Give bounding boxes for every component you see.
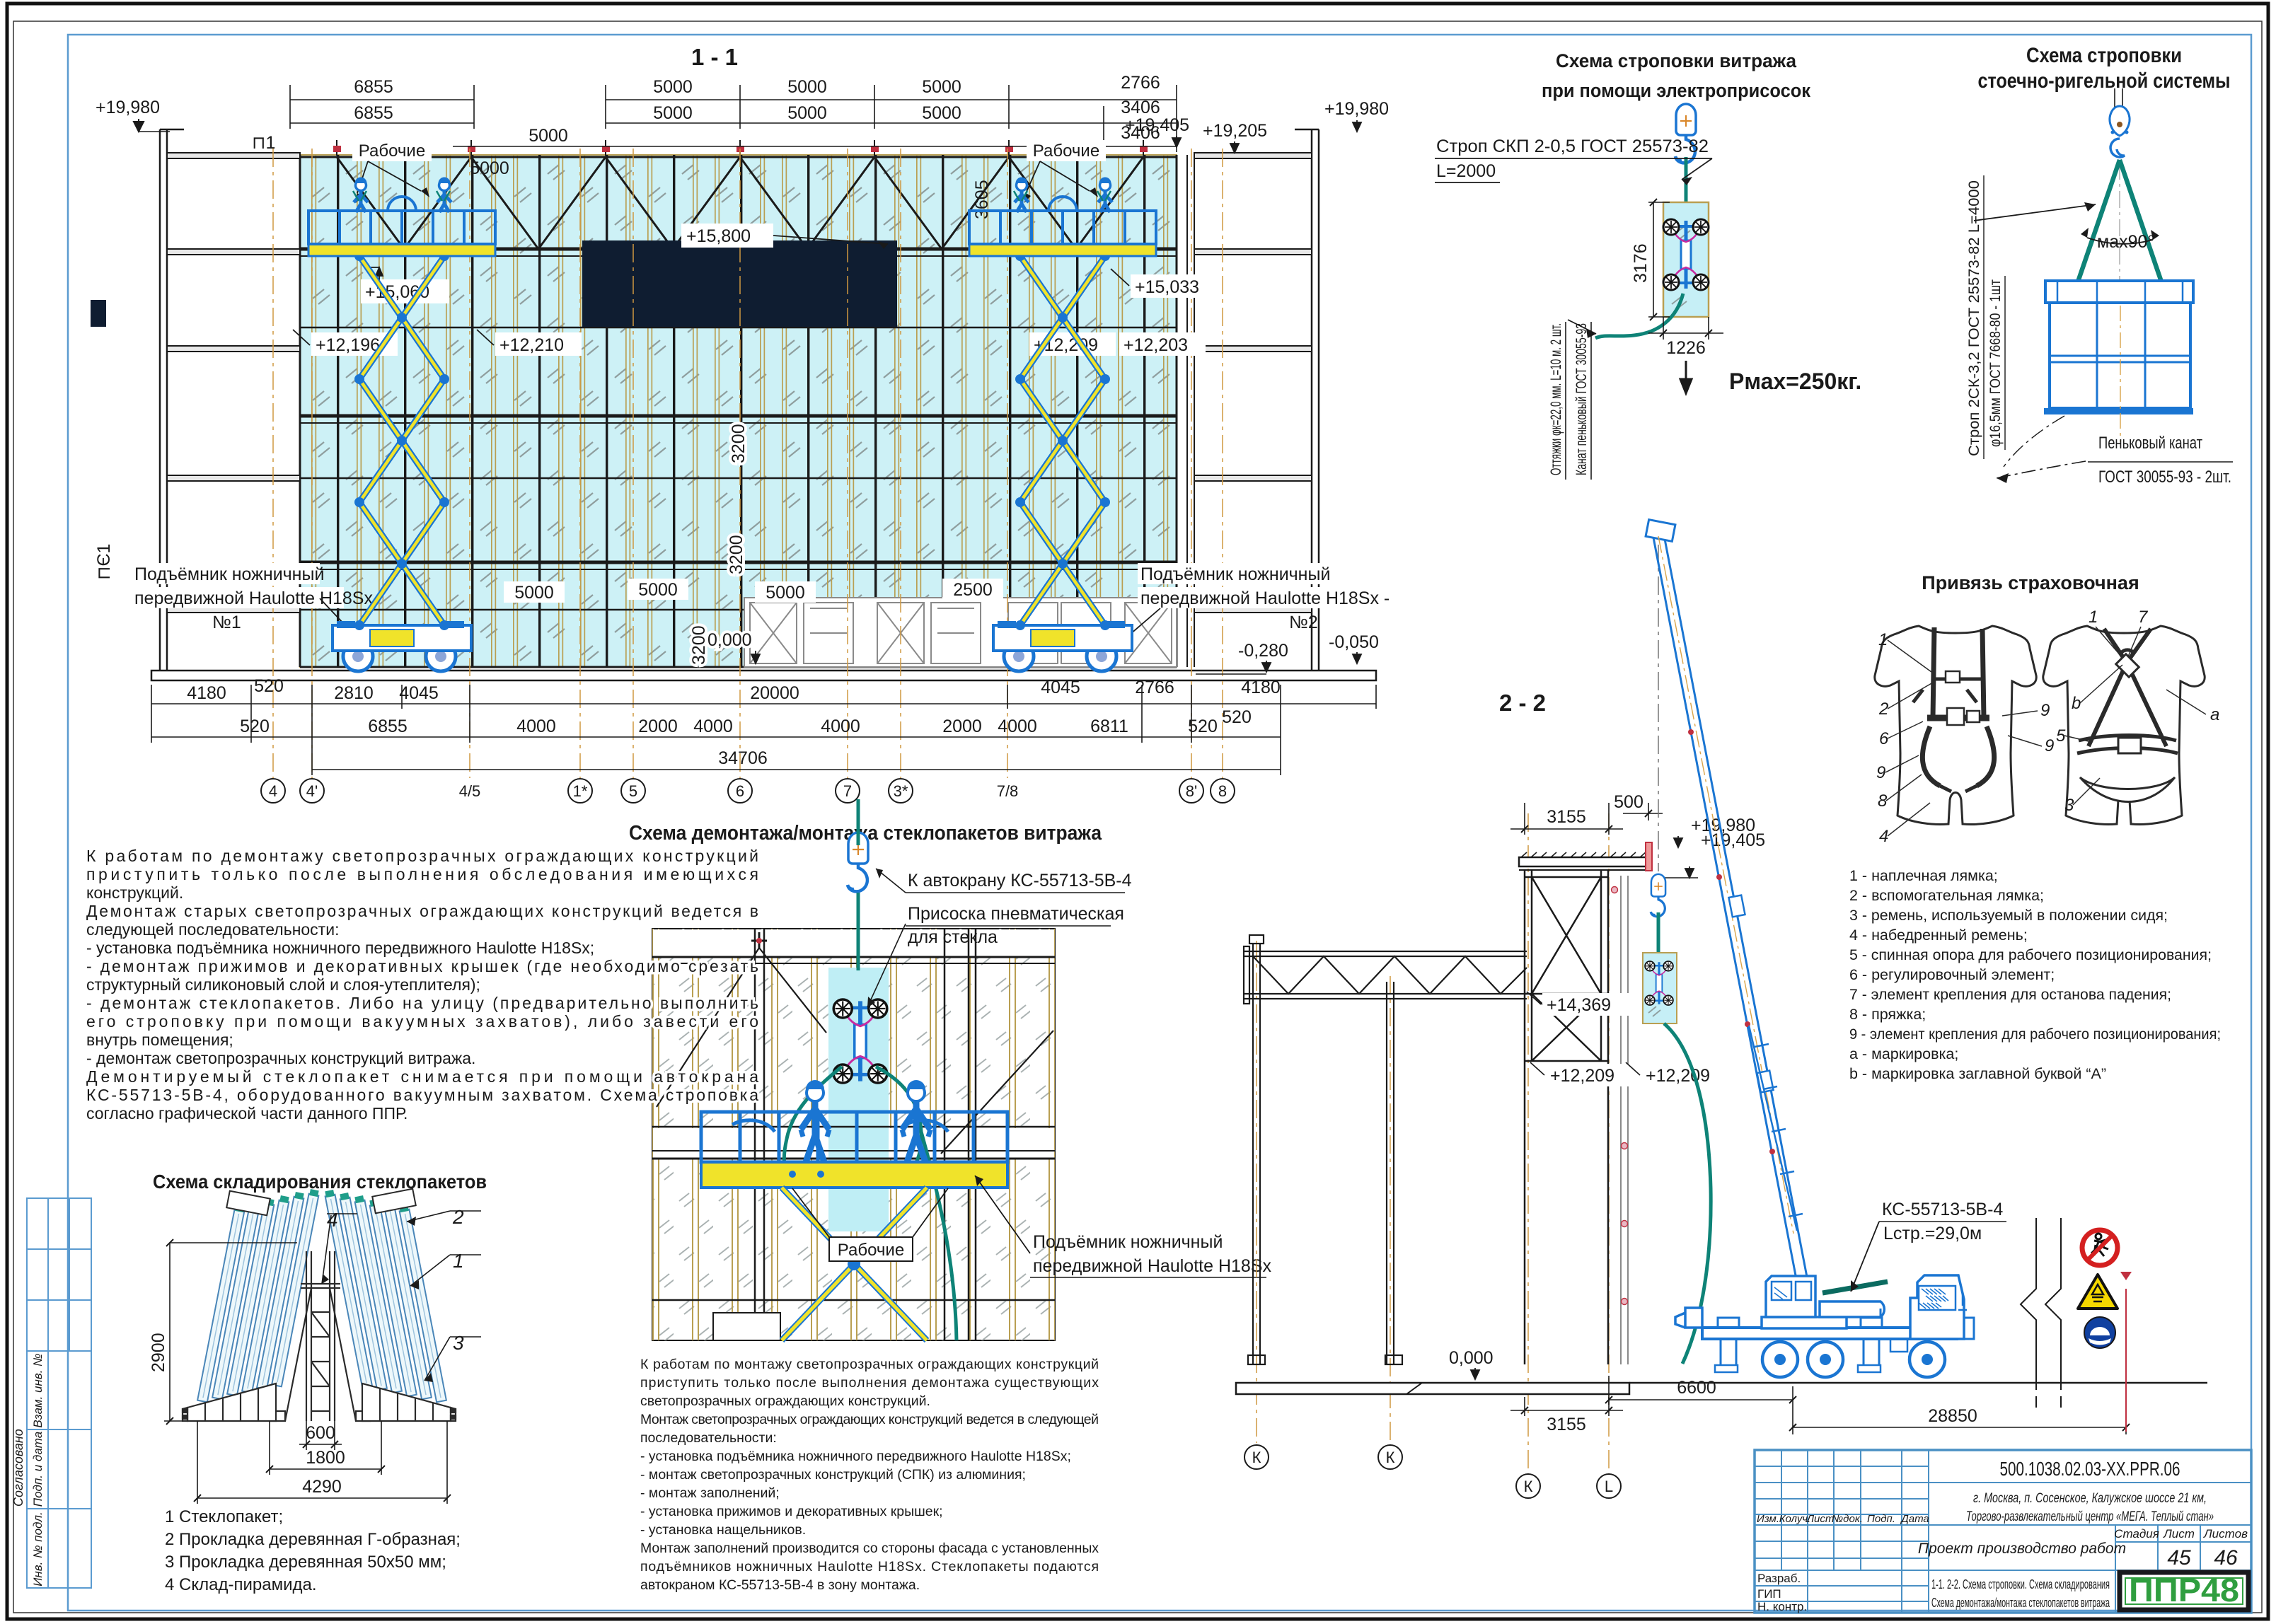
svg-text:a: a [2210,705,2219,724]
svg-text:6: 6 [1879,729,1889,748]
svg-text:600: 600 [306,1423,335,1443]
svg-text:Согласовано: Согласовано [11,1429,25,1507]
svg-text:согласно графической части дан: согласно графической части данного ППР. [86,1104,408,1123]
svg-text:5 - спинная опора для рабочего: 5 - спинная опора для рабочего позициони… [1849,946,2212,963]
svg-text:5000: 5000 [653,77,693,97]
svg-text:Изм.: Изм. [1757,1513,1779,1525]
svg-text:1: 1 [1878,630,1888,649]
svg-text:8: 8 [1218,782,1227,800]
svg-text:5000: 5000 [528,126,568,146]
svg-text:⊓Є1: ⊓Є1 [94,544,114,580]
svg-text:Подъёмник ножничный: Подъёмник ножничный [134,564,324,584]
svg-text:ППР48: ППР48 [2129,1572,2239,1608]
svg-text:1: 1 [2089,608,2098,627]
svg-text:Подъёмник ножничный: Подъёмник ножничный [1140,564,1330,584]
svg-text:500.1038.02.03-XX.PPR.06: 500.1038.02.03-XX.PPR.06 [2000,1458,2180,1480]
svg-text:Рмах=250кг.: Рмах=250кг. [1729,369,1861,394]
svg-text:приступить только после выполн: приступить только после выполнения обсле… [86,865,758,883]
svg-text:4045: 4045 [1041,678,1080,697]
svg-text:520: 520 [1222,707,1252,727]
svg-text:2766: 2766 [1135,678,1174,697]
svg-text:5000: 5000 [922,103,961,123]
svg-text:5000: 5000 [787,77,827,97]
svg-text:1-1. 2-2. Схема строповки. Схе: 1-1. 2-2. Схема строповки. Схема складир… [1931,1577,2110,1591]
svg-text:L: L [1605,1478,1613,1495]
svg-text:4: 4 [1879,827,1888,846]
svg-text:- установка подъёмника ножничн: - установка подъёмника ножничного передв… [640,1449,1071,1464]
svg-text:Пеньковый канат: Пеньковый канат [2098,434,2202,453]
svg-text:L=2000: L=2000 [1436,161,1496,181]
svg-text:Листов: Листов [2203,1527,2248,1541]
svg-text:Канат пеньковый ГОСТ 30055-93: Канат пеньковый ГОСТ 30055-93 [1573,323,1590,475]
svg-text:2 - вспомогательная лямка;: 2 - вспомогательная лямка; [1849,887,2044,904]
svg-text:- установка подъёмника ножничн: - установка подъёмника ножничного передв… [86,939,594,957]
svg-text:его строповку при помощи вакуу: его строповку при помощи вакуумных захва… [86,1012,758,1031]
svg-text:- установка прижимов и декорат: - установка прижимов и декоративных крыш… [640,1504,943,1519]
svg-text:ГОСТ 30055-93 - 2шт.: ГОСТ 30055-93 - 2шт. [2098,468,2231,487]
svg-text:Взам. инв. №: Взам. инв. № [31,1353,45,1427]
svg-text:2 - 2: 2 - 2 [1499,690,1546,716]
svg-text:a - маркировка;: a - маркировка; [1849,1045,1958,1062]
svg-text:34706: 34706 [718,748,768,768]
svg-text:Проект производство работ: Проект производство работ [1918,1541,2126,1557]
svg-text:7 - элемент крепления для оста: 7 - элемент крепления для останова паден… [1849,986,2171,1003]
svg-text:Лист: Лист [1806,1513,1835,1525]
svg-text:6 - регулировочный элемент;: 6 - регулировочный элемент; [1849,966,2055,983]
svg-text:b: b [2072,694,2081,713]
svg-text:6855: 6855 [354,77,393,97]
svg-text:9: 9 [2040,701,2050,720]
svg-text:Разраб.: Разраб. [1757,1572,1801,1585]
svg-text:5000: 5000 [653,103,693,123]
svg-text:Дата: Дата [1900,1513,1929,1525]
svg-text:г. Москва, п. Сосенское, Калуж: г. Москва, п. Сосенское, Калужское шоссе… [1973,1491,2207,1506]
svg-text:Подъёмник ножничный: Подъёмник ножничный [1033,1232,1223,1252]
svg-text:4180: 4180 [187,683,226,703]
svg-text:подъёмников ножничных Haulotte: подъёмников ножничных Haulotte H18Sx. Ст… [640,1559,1099,1574]
svg-text:+19,980: +19,980 [1324,99,1389,119]
svg-text:5000: 5000 [766,583,805,603]
svg-text:К работам по монтажу светопроз: К работам по монтажу светопрозрачных огр… [640,1357,1099,1372]
svg-text:5000: 5000 [787,103,827,123]
svg-text:1800: 1800 [306,1448,345,1468]
svg-text:3200: 3200 [729,424,749,463]
svg-text:5000: 5000 [638,580,678,600]
svg-text:3200: 3200 [727,535,746,574]
svg-text:8 - пряжка;: 8 - пряжка; [1849,1006,1926,1023]
svg-text:4 Склад-пирамида.: 4 Склад-пирамида. [165,1575,317,1594]
svg-text:3176: 3176 [1631,243,1651,283]
svg-text:передвижной Haulotte H18Sx: передвижной Haulotte H18Sx [1033,1256,1271,1276]
svg-text:стоечно-ригельной системы: стоечно-ригельной системы [1978,69,2231,93]
svg-text:КС-55713-5В-4: КС-55713-5В-4 [1882,1200,2003,1219]
svg-text:+12,209: +12,209 [1550,1066,1614,1086]
svg-text:2000: 2000 [638,717,678,736]
svg-text:8': 8' [1186,782,1197,800]
svg-text:0,000: 0,000 [1449,1348,1494,1368]
svg-text:Подп.: Подп. [1867,1513,1895,1525]
svg-text:1: 1 [453,1250,464,1272]
svg-text:К: К [1524,1478,1533,1495]
svg-text:№2: №2 [1289,613,1318,632]
svg-text:2500: 2500 [953,580,993,600]
svg-text:520: 520 [254,676,284,696]
svg-text:- монтаж светопрозрачных конст: - монтаж светопрозрачных конструкций (СП… [640,1467,1026,1483]
svg-text:1226: 1226 [1666,338,1706,358]
svg-text:3 Прокладка деревянная 50x50: 3 Прокладка деревянная 50x50 мм; [165,1553,446,1572]
svg-text:Присоска пневматическая: Присоска пневматическая [908,904,1124,924]
svg-text:К работам по демонтажу светопр: К работам по демонтажу светопрозрачных о… [86,847,758,865]
svg-text:45: 45 [2167,1546,2191,1570]
svg-text:+12,196: +12,196 [316,335,380,355]
svg-text:0,000: 0,000 [707,630,752,650]
svg-text:+15,800: +15,800 [686,226,751,246]
svg-text:для стекла: для стекла [908,927,998,947]
svg-text:- монтаж заполнений;: - монтаж заполнений; [640,1485,780,1501]
svg-text:+15,033: +15,033 [1135,277,1199,297]
svg-text:2766: 2766 [1121,73,1160,93]
svg-text:последовательности:: последовательности: [640,1430,777,1446]
svg-text:7: 7 [843,782,852,800]
svg-text:+12,203: +12,203 [1123,335,1188,355]
svg-text:передвижной Haulotte H18Sx: передвижной Haulotte H18Sx [134,588,373,608]
svg-text:Монтаж светопрозрачных огражда: Монтаж светопрозрачных ограждающих конст… [640,1412,1099,1427]
svg-text:28850: 28850 [1928,1406,1977,1426]
svg-text:520: 520 [240,717,270,736]
svg-text:светопрозрачных ограждающих ко: светопрозрачных ограждающих конструкций. [640,1393,930,1409]
svg-text:3605: 3605 [972,180,992,219]
svg-text:5: 5 [629,782,637,800]
svg-text:№1: №1 [212,613,241,632]
svg-text:структурный силиконовый слой и: структурный силиконовый слой и слоя-утеп… [86,975,480,994]
svg-text:4/5: 4/5 [459,782,481,800]
svg-text:b - маркировка заглавной букво: b - маркировка заглавной буквой “А” [1849,1065,2106,1082]
svg-text:3 - ремень, используемый в пол: 3 - ремень, используемый в положении сид… [1849,907,2168,924]
svg-text:3: 3 [453,1332,464,1354]
svg-text:4: 4 [269,782,277,800]
svg-text:внутрь помещения;: внутрь помещения; [86,1031,233,1049]
svg-text:Схема складирования стеклопаке: Схема складирования стеклопакетов [153,1171,487,1193]
svg-text:- демонтаж стеклопакетов. Либо: - демонтаж стеклопакетов. Либо на улицу … [86,994,758,1012]
svg-text:Рабочие: Рабочие [838,1241,904,1260]
svg-text:К: К [1252,1449,1261,1466]
svg-text:6: 6 [736,782,744,800]
svg-text:1 - наплечная лямка;: 1 - наплечная лямка; [1849,867,1998,884]
svg-text:+12,210: +12,210 [499,335,564,355]
svg-text:6600: 6600 [1677,1378,1716,1398]
svg-text:500: 500 [1614,792,1644,812]
svg-text:4000: 4000 [998,717,1037,736]
svg-text:φ16,5мм ГОСТ 7668-80 - 1шт: φ16,5мм ГОСТ 7668-80 - 1шт [1987,279,2004,447]
svg-text:9: 9 [2045,736,2054,755]
svg-text:К автокрану КС-55713-5В-4: К автокрану КС-55713-5В-4 [908,871,1132,891]
svg-text:6855: 6855 [354,103,393,123]
svg-text:1 - 1: 1 - 1 [691,44,738,70]
svg-text:Lстр.=29,0м: Lстр.=29,0м [1883,1224,1982,1243]
svg-text:4045: 4045 [399,683,439,703]
svg-text:8: 8 [1878,791,1888,811]
svg-text:+12,209: +12,209 [1646,1066,1710,1086]
svg-text:3155: 3155 [1547,807,1586,827]
svg-text:следующей последовательности:: следующей последовательности: [86,920,339,939]
svg-text:мах90°: мах90° [2097,232,2154,252]
svg-text:-0,280: -0,280 [1238,641,1288,661]
svg-text:4000: 4000 [821,717,860,736]
svg-text:4: 4 [327,1209,338,1231]
svg-text:Строп СКП 2-0,5 ГОСТ 25573-82: Строп СКП 2-0,5 ГОСТ 25573-82 [1436,137,1709,156]
svg-text:520: 520 [1188,717,1218,736]
svg-text:2900: 2900 [149,1333,168,1372]
svg-text:автокраном КС-55713-5В-4 в зон: автокраном КС-55713-5В-4 в зону монтажа. [640,1577,920,1593]
svg-text:4290: 4290 [302,1477,342,1497]
svg-text:Инв. № подл.: Инв. № подл. [31,1512,45,1587]
svg-text:Торгово-развлекательный центр: Торгово-развлекательный центр «МЕГА. Теп… [1966,1509,2214,1524]
svg-text:Схема демонтажа/монтажа стекло: Схема демонтажа/монтажа стеклопакетов ви… [1931,1596,2110,1610]
svg-text:3200: 3200 [689,625,709,665]
svg-text:- демонтаж светопрозрачных кон: - демонтаж светопрозрачных конструкций в… [86,1049,475,1067]
svg-text:Схема строповки витража: Схема строповки витража [1556,50,1797,71]
svg-text:4000: 4000 [516,717,556,736]
svg-text:2: 2 [1878,700,1888,719]
svg-text:передвижной Haulotte H18Sx -: передвижной Haulotte H18Sx - [1140,588,1390,608]
svg-text:4 - набедренный ремень;: 4 - набедренный ремень; [1849,927,2028,944]
svg-text:конструкций.: конструкций. [86,883,183,902]
svg-text:+14,369: +14,369 [1547,995,1611,1015]
svg-text:Н. контр.: Н. контр. [1757,1600,1807,1613]
svg-text:- демонтаж прижимов и декорати: - демонтаж прижимов и декоративных крыше… [86,957,758,975]
svg-text:К: К [1386,1449,1395,1466]
svg-text:Подп. и дата: Подп. и дата [31,1432,45,1507]
svg-text:2000: 2000 [942,717,982,736]
svg-text:Колуч.: Колуч. [1779,1513,1811,1525]
svg-text:Привязь страховочная: Привязь страховочная [1922,572,2139,593]
svg-text:Схема строповки: Схема строповки [2026,44,2182,67]
svg-text:6855: 6855 [368,717,408,736]
svg-text:2: 2 [452,1206,464,1228]
svg-text:3: 3 [2064,796,2074,815]
svg-text:Лист: Лист [2163,1527,2195,1541]
svg-text:9: 9 [1876,763,1885,782]
svg-text:6811: 6811 [1090,717,1128,736]
svg-text:+19,205: +19,205 [1203,121,1267,141]
svg-text:№док.: №док. [1832,1513,1863,1525]
svg-text:ГИП: ГИП [1757,1587,1781,1601]
svg-text:⊓1: ⊓1 [252,133,275,153]
svg-text:Оттяжки φк=22,0 мм. L=10 м. 2: Оттяжки φк=22,0 мм. L=10 м. 2 шт. [1548,323,1564,475]
svg-text:4180: 4180 [1241,678,1281,697]
svg-text:46: 46 [2214,1546,2238,1570]
svg-text:при помощи электроприсосок: при помощи электроприсосок [1542,80,1810,101]
svg-text:1 Стеклопакет;: 1 Стеклопакет; [165,1507,283,1526]
svg-text:3*: 3* [894,782,908,800]
svg-text:3406: 3406 [1121,98,1160,117]
svg-text:2810: 2810 [334,683,374,703]
svg-text:20000: 20000 [750,683,799,703]
svg-text:+19,980: +19,980 [96,98,160,117]
svg-text:7/8: 7/8 [997,782,1019,800]
svg-text:- установка нащельников.: - установка нащельников. [640,1522,806,1538]
svg-text:Рабочие: Рабочие [1033,141,1099,161]
svg-text:1*: 1* [573,782,588,800]
svg-text:Рабочие: Рабочие [359,141,425,161]
svg-text:Стадия: Стадия [2114,1527,2159,1541]
svg-text:приступить только после выполн: приступить только после выполнения демон… [640,1375,1099,1391]
svg-text:5000: 5000 [514,583,554,603]
svg-text:3155: 3155 [1547,1415,1586,1434]
svg-text:5000: 5000 [470,158,509,178]
svg-text:Строп 2СК-3,2 ГОСТ 25573-82 L: Строп 2СК-3,2 ГОСТ 25573-82 L=4000 [1966,180,1982,456]
svg-text:4': 4' [306,782,318,800]
svg-text:-0,050: -0,050 [1329,632,1379,652]
svg-text:5000: 5000 [922,77,961,97]
svg-text:7: 7 [2138,608,2149,627]
svg-text:Монтаж заполнений производится: Монтаж заполнений производится со сторон… [640,1541,1099,1556]
svg-text:4000: 4000 [693,717,733,736]
svg-text:2 Прокладка деревянная Г-обра: 2 Прокладка деревянная Г-образная; [165,1530,461,1549]
svg-text:+19,405: +19,405 [1125,115,1189,135]
svg-text:9 - элемент крепления для рабо: 9 - элемент крепления для рабочего позиц… [1849,1026,2221,1043]
svg-text:Демонтаж старых светопрозрачны: Демонтаж старых светопрозрачных ограждаю… [86,902,758,920]
